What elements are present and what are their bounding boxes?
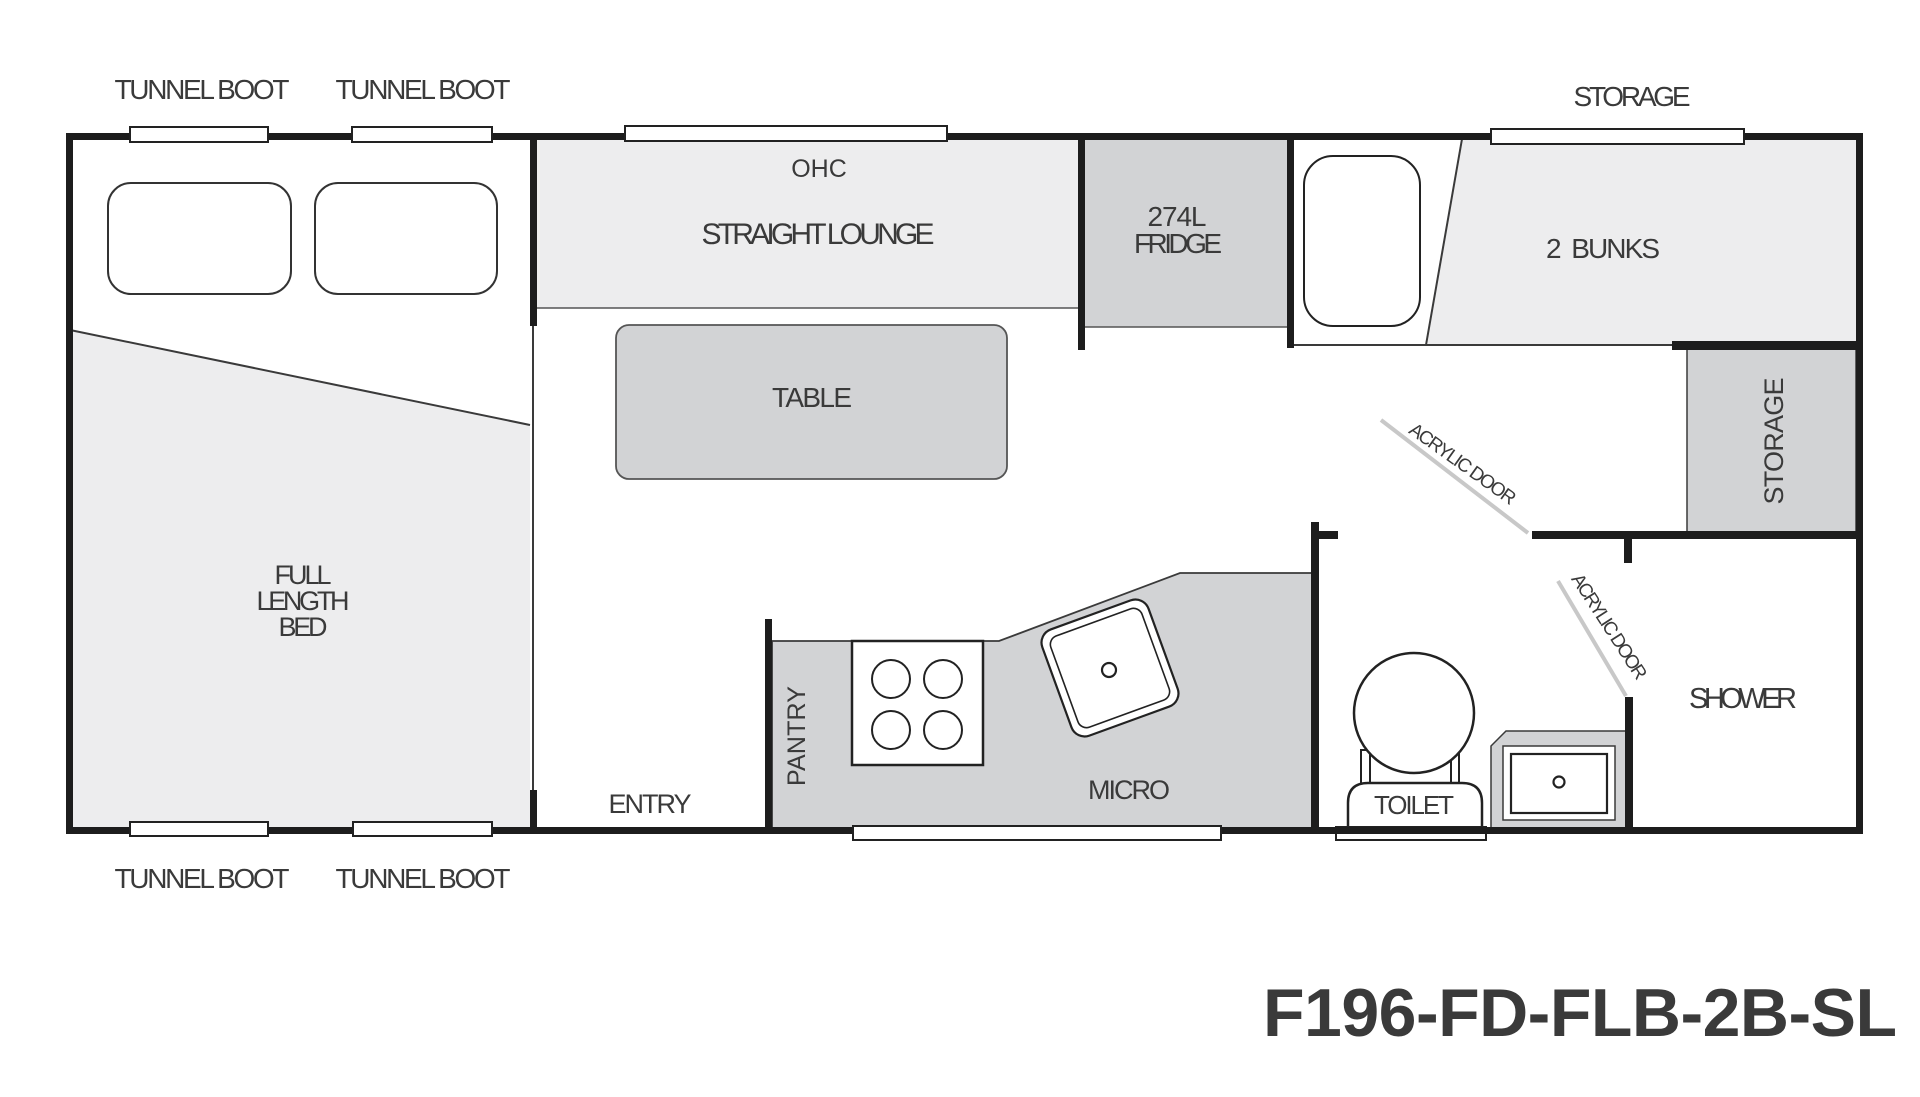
svg-text:BED: BED xyxy=(279,612,328,642)
svg-text:MICRO: MICRO xyxy=(1088,775,1170,805)
svg-text:F196-FD-FLB-2B-SL: F196-FD-FLB-2B-SL xyxy=(1263,975,1897,1051)
svg-text:OHC: OHC xyxy=(791,155,847,183)
svg-text:TABLE: TABLE xyxy=(772,382,852,413)
svg-text:TUNNEL BOOT: TUNNEL BOOT xyxy=(115,863,290,894)
svg-text:PANTRY: PANTRY xyxy=(783,686,811,786)
svg-text:TUNNEL BOOT: TUNNEL BOOT xyxy=(336,74,511,105)
svg-text:TOILET: TOILET xyxy=(1374,790,1454,820)
svg-text:ENTRY: ENTRY xyxy=(609,789,692,819)
svg-text:TUNNEL BOOT: TUNNEL BOOT xyxy=(336,863,511,894)
svg-text:STORAGE: STORAGE xyxy=(1574,81,1691,112)
svg-text:2 BUNKS: 2 BUNKS xyxy=(1546,233,1660,264)
svg-text:FRIDGE: FRIDGE xyxy=(1134,228,1222,259)
svg-text:SHOWER: SHOWER xyxy=(1689,683,1797,715)
svg-text:STORAGE: STORAGE xyxy=(1759,378,1789,505)
svg-text:STRAIGHT LOUNGE: STRAIGHT LOUNGE xyxy=(702,218,935,251)
svg-text:TUNNEL BOOT: TUNNEL BOOT xyxy=(115,74,290,105)
